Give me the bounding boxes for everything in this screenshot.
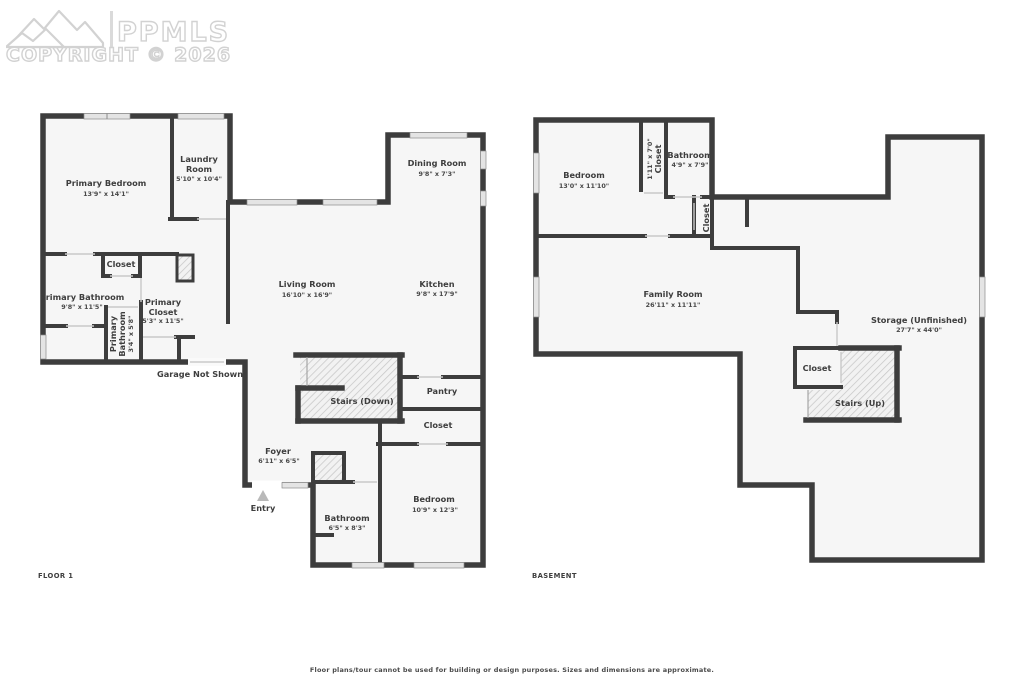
room-dims-family-room: 26'11" x 11'11" — [646, 301, 701, 309]
basement-title: BASEMENT — [532, 572, 577, 580]
room-label-primary-bathroom-small: Primary Bathroom 3'4" x 5'8" — [108, 311, 135, 356]
room-label-closet-hall: Closet — [424, 420, 453, 430]
floor1-chimney-hatch — [177, 255, 193, 281]
room-label-bsmt-closet-stairs: Closet — [803, 363, 832, 373]
floor1-title: FLOOR 1 — [38, 572, 73, 580]
room-dims-bsmt-bedroom: 13'0" x 11'10" — [559, 182, 609, 190]
svg-text:Closet: Closet — [701, 204, 711, 233]
room-label-bedroom: Bedroom — [413, 494, 454, 504]
room-label-primary-bathroom: Primary Bathroom — [40, 292, 124, 302]
svg-text:Closet: Closet — [653, 145, 663, 174]
room-label-stairs-up: Stairs (Up) — [835, 398, 885, 408]
room-label-laundry-2: Room — [186, 164, 212, 174]
room-label-primary-closet-1: Primary — [145, 297, 182, 307]
room-label-living-room: Living Room — [279, 279, 336, 289]
garage-note: Garage Not Shown — [157, 369, 243, 379]
room-label-bsmt-closet-hall: Closet — [701, 204, 711, 233]
room-label-laundry-1: Laundry — [180, 154, 218, 164]
disclaimer-text: Floor plans/tour cannot be used for buil… — [0, 666, 1024, 674]
room-label-kitchen: Kitchen — [419, 279, 454, 289]
room-dims-bedroom: 10'9" x 12'3" — [412, 506, 458, 514]
svg-text:1'11" x 7'0": 1'11" x 7'0" — [646, 138, 654, 179]
room-label-bsmt-bedroom: Bedroom — [563, 170, 604, 180]
floorplan-page: PPMLS COPYRIGHT © 2026 — [0, 0, 1024, 682]
room-label-entry: Entry — [251, 503, 276, 513]
room-label-dining-room: Dining Room — [408, 158, 467, 168]
svg-text:3'4" x 5'8": 3'4" x 5'8" — [127, 316, 135, 353]
room-dims-laundry: 5'10" x 10'4" — [176, 175, 222, 183]
room-dims-bsmt-bathroom: 4'9" x 7'9" — [672, 161, 709, 169]
floor1-fireplace-hatch — [313, 453, 344, 482]
room-label-bathroom: Bathroom — [324, 513, 369, 523]
room-label-stairs-down: Stairs (Down) — [330, 396, 393, 406]
floorplan-floor1: Primary Bedroom 13'9" x 14'1" Laundry Ro… — [38, 114, 486, 581]
room-dims-foyer: 6'11" x 6'5" — [258, 457, 299, 465]
room-dims-primary-bathroom: 9'8" x 11'5" — [61, 303, 102, 311]
room-dims-living-room: 16'10" x 16'9" — [282, 291, 332, 299]
room-dims-primary-bedroom: 13'9" x 14'1" — [83, 190, 129, 198]
room-label-storage: Storage (Unfinished) — [871, 315, 967, 325]
room-label-foyer: Foyer — [265, 446, 292, 456]
room-label-bsmt-bathroom: Bathroom — [667, 150, 712, 160]
floorplan-basement: Bedroom 13'0" x 11'10" Closet 1'11" x 7'… — [532, 120, 985, 580]
svg-text:Bathroom: Bathroom — [117, 311, 127, 356]
room-dims-storage: 27'7" x 44'0" — [896, 326, 942, 334]
room-label-primary-closet-2: Closet — [149, 307, 178, 317]
room-dims-dining-room: 9'8" x 7'3" — [419, 170, 456, 178]
room-dims-primary-closet: 5'3" x 11'5" — [142, 317, 183, 325]
room-dims-bathroom: 6'5" x 8'3" — [329, 524, 366, 532]
floorplan-canvas: Primary Bedroom 13'9" x 14'1" Laundry Ro… — [0, 0, 1024, 682]
entry-arrow-icon — [257, 490, 269, 501]
room-label-primary-bedroom: Primary Bedroom — [66, 178, 147, 188]
room-label-closet-top: Closet — [107, 259, 136, 269]
room-dims-kitchen: 9'8" x 17'9" — [416, 290, 457, 298]
room-label-pantry: Pantry — [427, 386, 458, 396]
room-label-family-room: Family Room — [643, 289, 702, 299]
entry-door-opening — [252, 481, 282, 490]
